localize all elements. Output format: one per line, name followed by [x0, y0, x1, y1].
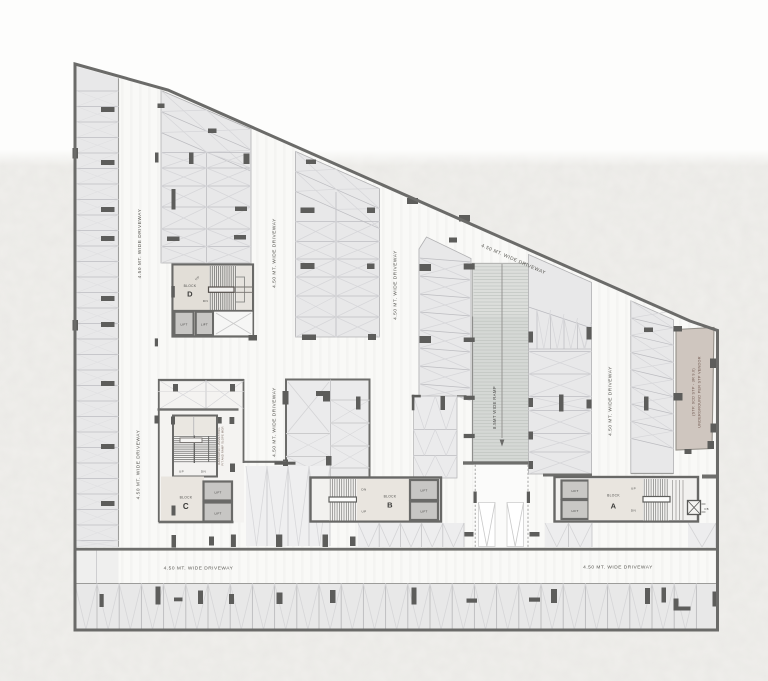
svg-text:BLOCK: BLOCK — [607, 494, 620, 498]
svg-text:C: C — [183, 502, 189, 511]
svg-text:LIFT: LIFT — [181, 322, 188, 326]
svg-text:DN: DN — [203, 299, 208, 303]
svg-text:BLOCK: BLOCK — [180, 496, 193, 500]
svg-text:4.50 MT. WIDE DRIVEWAY: 4.50 MT. WIDE DRIVEWAY — [272, 218, 278, 288]
svg-text:4.50 MT. WIDE DRIVEWAY: 4.50 MT. WIDE DRIVEWAY — [164, 566, 234, 572]
svg-text:LIFT: LIFT — [421, 489, 428, 493]
svg-text:UNDERGROUND PER STP VENDOR: UNDERGROUND PER STP VENDOR — [698, 356, 702, 427]
svg-text:B: B — [387, 501, 393, 510]
svg-text:LIFT: LIFT — [215, 512, 222, 516]
svg-text:UP: UP — [631, 487, 636, 491]
svg-text:DB: DB — [705, 507, 709, 511]
svg-text:DN: DN — [361, 488, 366, 492]
svg-text:(STP. 9CD STP - 3R 9.0): (STP. 9CD STP - 3R 9.0) — [692, 368, 696, 416]
svg-text:LIFT: LIFT — [421, 510, 428, 514]
svg-text:A: A — [611, 502, 617, 511]
svg-text:DN: DN — [631, 509, 636, 513]
svg-text:4.50 MT. WIDE DRIVEWAY: 4.50 MT. WIDE DRIVEWAY — [393, 250, 399, 320]
svg-text:DN: DN — [201, 470, 206, 474]
svg-text:LIFT: LIFT — [572, 509, 579, 513]
svg-text:4.50 MT. WIDE DRIVEWAY: 4.50 MT. WIDE DRIVEWAY — [136, 429, 142, 499]
svg-text:PIT AND RAMP SLOPE MGR: PIT AND RAMP SLOPE MGR — [220, 426, 224, 465]
svg-text:4.50 MT. WIDE DRIVEWAY: 4.50 MT. WIDE DRIVEWAY — [608, 366, 614, 436]
svg-text:LIFT: LIFT — [201, 322, 208, 326]
svg-text:8.5MT WIDE RAMP: 8.5MT WIDE RAMP — [492, 386, 497, 429]
svg-text:UP: UP — [361, 510, 366, 514]
svg-text:BLOCK: BLOCK — [384, 495, 397, 499]
svg-text:LIFT: LIFT — [572, 489, 579, 493]
svg-text:UP: UP — [179, 470, 184, 474]
svg-text:4.50 MT. WIDE DRIVEWAY: 4.50 MT. WIDE DRIVEWAY — [583, 565, 653, 571]
svg-text:4.50 MT. WIDE DRIVEWAY: 4.50 MT. WIDE DRIVEWAY — [137, 208, 143, 278]
svg-text:BLOCK: BLOCK — [184, 284, 197, 288]
svg-text:D: D — [187, 290, 193, 299]
svg-text:4.50 MT. WIDE DRIVEWAY: 4.50 MT. WIDE DRIVEWAY — [272, 387, 278, 457]
svg-text:LIFT: LIFT — [215, 491, 222, 495]
